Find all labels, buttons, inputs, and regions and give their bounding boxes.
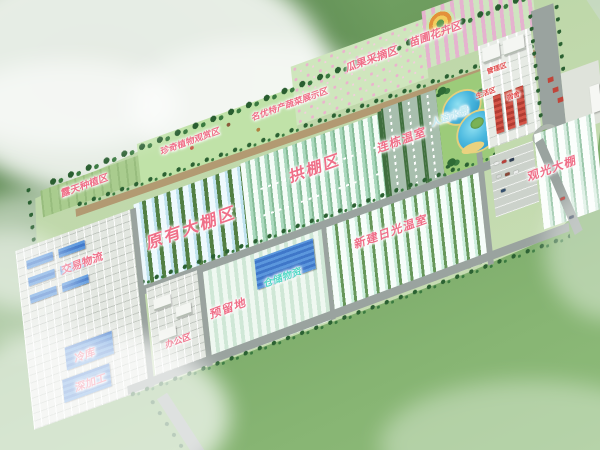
- entrance-gate: [589, 83, 600, 113]
- aerial-site-plan-rendering: 露天种植区 珍奇植物观赏区 名优特产蔬菜展示区 瓜果采摘区 苗圃花卉区 拱棚区 …: [0, 0, 600, 450]
- greenhouse-ridge-line: [426, 94, 437, 178]
